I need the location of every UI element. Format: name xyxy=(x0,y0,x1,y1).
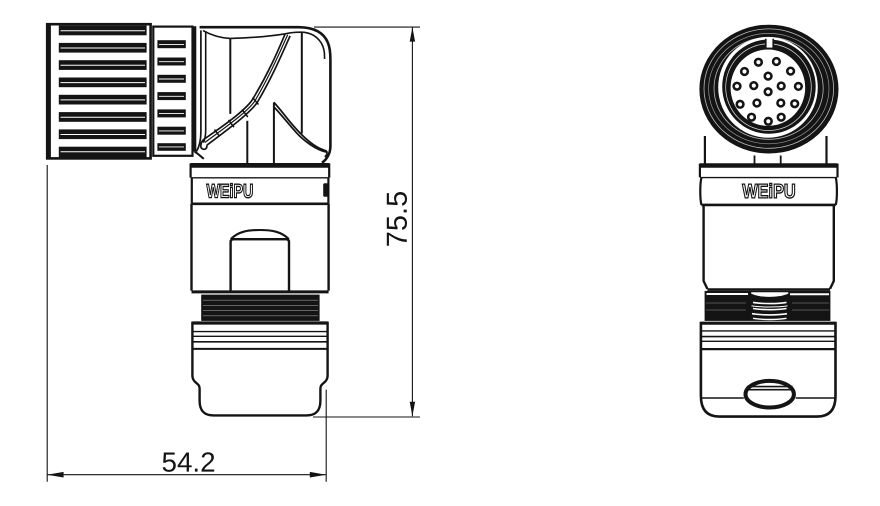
svg-text:WEiPU: WEiPU xyxy=(742,181,795,203)
svg-text:WEiPU: WEiPU xyxy=(206,181,253,203)
svg-text:75.5: 75.5 xyxy=(382,191,414,247)
svg-text:54.2: 54.2 xyxy=(161,447,215,478)
